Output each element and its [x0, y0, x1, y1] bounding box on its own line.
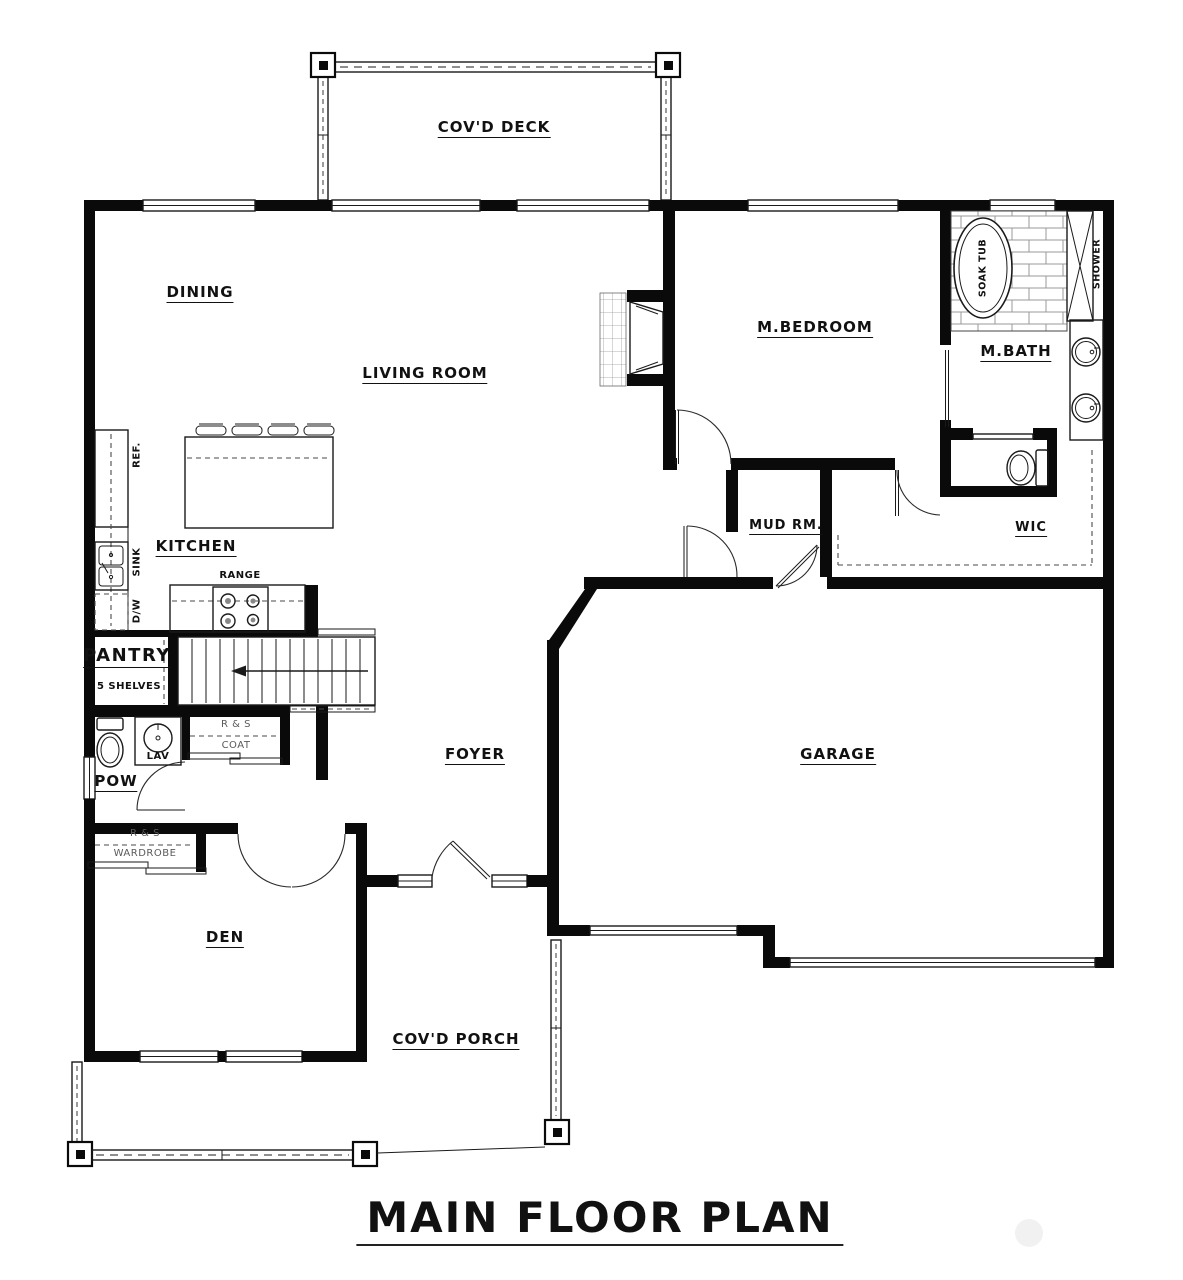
window: [492, 875, 527, 887]
label-dw: D/W: [132, 599, 143, 623]
porch-post: [545, 1120, 569, 1144]
deck-post: [656, 53, 680, 77]
room-label-dining: DINING: [166, 283, 233, 303]
front-door: [432, 841, 490, 879]
room-label-m-bath: M.BATH: [980, 342, 1051, 362]
mud-room-door: [684, 526, 737, 577]
range-counter: [170, 585, 305, 632]
window: [990, 200, 1055, 211]
room-label-foyer: FOYER: [445, 745, 505, 765]
fireplace: [600, 290, 663, 386]
label-sink: SINK: [132, 547, 143, 576]
label-wardrobe: WARDROBE: [114, 848, 177, 859]
room-label-covd-porch: COV'D PORCH: [392, 1030, 519, 1050]
window: [226, 1051, 302, 1062]
room-label-garage: GARAGE: [800, 745, 876, 765]
wic-door: [896, 470, 941, 516]
room-label-wic: WIC: [1015, 520, 1047, 537]
room-label-pantry: PANTRY: [83, 645, 171, 668]
garage-door: [790, 958, 1095, 967]
window: [140, 1051, 218, 1062]
pow-door: [137, 762, 185, 810]
bedroom-door: [676, 410, 732, 464]
window: [398, 875, 432, 887]
wc-toilet: [1007, 450, 1048, 486]
shower: [1067, 211, 1093, 321]
stair-direction-arrow: [231, 666, 368, 677]
garage-entry-door: [776, 545, 819, 588]
label-range: RANGE: [219, 570, 260, 581]
watermark-circle: [1015, 1219, 1043, 1247]
range: [213, 587, 268, 632]
doors: [137, 350, 1033, 887]
room-label-m-bedroom: M.BEDROOM: [757, 318, 873, 338]
room-label-kitchen: KITCHEN: [156, 537, 237, 557]
label-ref: REF.: [132, 442, 143, 468]
porch-post: [68, 1142, 92, 1166]
label-coat: COAT: [222, 740, 251, 751]
window: [748, 200, 898, 211]
window: [517, 200, 649, 211]
kitchen-island: [185, 424, 334, 528]
label-shower: SHOWER: [1092, 239, 1103, 289]
floor-plan: COV'D DECK DINING LIVING ROOM M.BEDROOM …: [0, 0, 1183, 1280]
label-wardrobe-rs: R & S: [130, 828, 160, 839]
garage-door: [590, 926, 737, 935]
plan-title: MAIN FLOOR PLAN: [356, 1193, 843, 1246]
room-label-living-room: LIVING ROOM: [362, 364, 487, 384]
label-coat-rs: R & S: [221, 719, 251, 730]
bath-door: [946, 350, 949, 427]
pocket-door: [973, 434, 1033, 439]
window: [332, 200, 480, 211]
den-double-doors: [238, 834, 345, 887]
room-label-covd-deck: COV'D DECK: [438, 118, 551, 138]
room-label-mud-rm: MUD RM.: [749, 518, 823, 535]
toilet: [97, 718, 123, 767]
double-vanity: [1070, 320, 1103, 440]
label-soak-tub: SOAK TUB: [978, 239, 989, 297]
window: [84, 757, 95, 799]
label-lav: LAV: [147, 751, 170, 762]
floor-plan-drawing: [0, 0, 1183, 1280]
porch-post: [353, 1142, 377, 1166]
staircase: [164, 629, 375, 712]
room-label-den: DEN: [206, 928, 244, 948]
deck-post: [311, 53, 335, 77]
room-label-pow: POW: [94, 772, 137, 792]
label-pantry-shelves: 5 SHELVES: [97, 681, 161, 692]
window: [143, 200, 255, 211]
